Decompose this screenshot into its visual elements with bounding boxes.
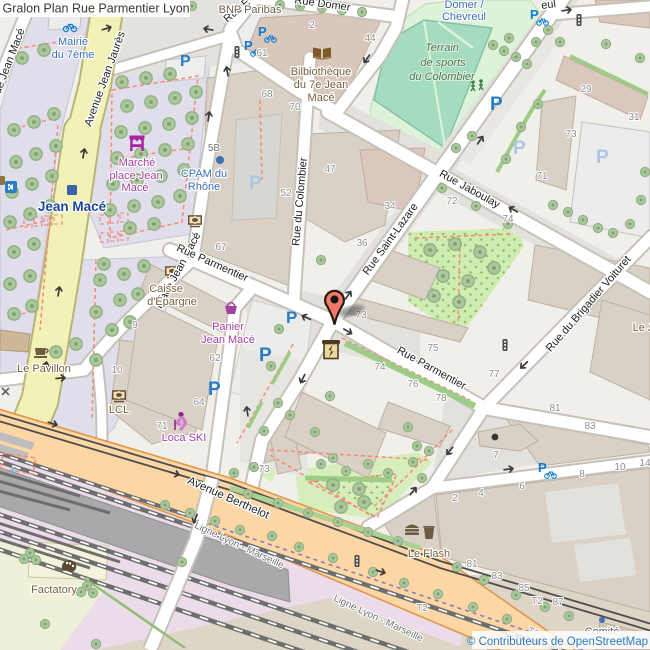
svg-text:47: 47 [324, 164, 336, 175]
svg-text:© Contributeurs de OpenStreetM: © Contributeurs de OpenStreetMap [467, 636, 648, 648]
svg-text:83: 83 [584, 421, 596, 432]
svg-text:Bilbiothèque: Bilbiothèque [291, 66, 352, 78]
svg-text:76: 76 [407, 379, 419, 390]
svg-text:P: P [249, 173, 262, 194]
svg-text:85: 85 [518, 583, 530, 594]
svg-text:BNP Paribas: BNP Paribas [219, 4, 282, 16]
svg-text:71: 71 [156, 421, 168, 432]
svg-text:P: P [596, 147, 609, 168]
svg-text:Terrain: Terrain [425, 42, 459, 54]
svg-text:10: 10 [614, 462, 626, 473]
svg-text:Mairie: Mairie [58, 36, 88, 48]
svg-text:Le Flash: Le Flash [408, 548, 450, 560]
svg-text:14: 14 [639, 458, 650, 469]
svg-text:P: P [11, 466, 18, 477]
svg-text:52: 52 [280, 188, 292, 199]
svg-text:78: 78 [435, 393, 447, 404]
svg-text:LCL: LCL [109, 404, 129, 416]
svg-text:2: 2 [309, 20, 315, 31]
svg-text:81: 81 [466, 559, 478, 570]
svg-text:P: P [286, 308, 297, 327]
svg-text:5B: 5B [208, 143, 221, 154]
svg-text:Marché: Marché [119, 157, 156, 169]
svg-text:Gralon Plan Rue Parmentier Lyo: Gralon Plan Rue Parmentier Lyon [3, 2, 190, 16]
svg-text:P: P [208, 379, 221, 400]
svg-text:36: 36 [356, 238, 368, 249]
svg-text:75: 75 [427, 343, 439, 354]
svg-text:de sports: de sports [420, 57, 466, 69]
svg-text:68: 68 [261, 89, 273, 100]
svg-text:Domer /: Domer / [444, 0, 484, 11]
svg-text:Jean Macé: Jean Macé [201, 334, 255, 346]
svg-text:P: P [259, 345, 272, 366]
svg-text:Macé: Macé [308, 92, 335, 104]
svg-text:T2: T2 [416, 603, 428, 614]
svg-text:du 7e Jean: du 7e Jean [294, 79, 348, 91]
svg-text:eul: eul [540, 0, 556, 12]
svg-text:31: 31 [628, 112, 640, 123]
svg-text:place Jean: place Jean [109, 170, 162, 182]
svg-text:du 7ème: du 7ème [52, 49, 95, 61]
svg-text:61: 61 [256, 48, 268, 59]
svg-text:Macé: Macé [122, 182, 149, 194]
svg-text:73: 73 [258, 464, 270, 475]
svg-text:77: 77 [488, 369, 500, 380]
svg-text:P: P [513, 138, 526, 159]
svg-text:7: 7 [493, 450, 499, 461]
svg-text:81: 81 [549, 403, 561, 414]
svg-text:74: 74 [374, 362, 386, 373]
svg-text:29: 29 [580, 84, 592, 95]
svg-text:d'Épargne: d'Épargne [147, 295, 197, 308]
svg-text:T2: T2 [531, 596, 543, 607]
svg-text:Chevreul: Chevreul [442, 11, 486, 23]
svg-text:87: 87 [552, 597, 564, 608]
svg-text:Factatory: Factatory [31, 584, 77, 596]
svg-text:62: 62 [209, 353, 221, 364]
svg-text:Le J: Le J [633, 322, 650, 334]
svg-text:67: 67 [215, 242, 227, 253]
svg-text:Le Pavillon: Le Pavillon [17, 363, 71, 375]
svg-text:Rhône: Rhône [188, 181, 220, 193]
svg-text:71: 71 [536, 171, 548, 182]
svg-text:44: 44 [364, 33, 376, 44]
svg-text:Caisse: Caisse [149, 283, 183, 295]
svg-text:34: 34 [384, 201, 396, 212]
svg-text:2: 2 [452, 493, 458, 504]
svg-text:83: 83 [491, 571, 503, 582]
svg-text:64: 64 [193, 397, 205, 408]
svg-text:8: 8 [579, 469, 585, 480]
svg-text:72: 72 [446, 196, 458, 207]
svg-text:Jean Macé: Jean Macé [38, 199, 107, 214]
svg-text:Loca SKI: Loca SKI [162, 432, 207, 444]
svg-text:4: 4 [478, 488, 484, 499]
svg-text:70: 70 [289, 102, 301, 113]
svg-text:du Colombier: du Colombier [409, 71, 476, 83]
svg-text:P: P [180, 53, 191, 70]
svg-text:10: 10 [111, 365, 123, 376]
svg-text:CPAM du: CPAM du [181, 168, 227, 180]
svg-text:74: 74 [502, 214, 514, 225]
svg-text:9: 9 [132, 320, 138, 331]
svg-text:6: 6 [519, 481, 525, 492]
svg-text:P: P [490, 94, 503, 115]
svg-text:73: 73 [565, 129, 577, 140]
svg-text:Panier: Panier [212, 321, 244, 333]
